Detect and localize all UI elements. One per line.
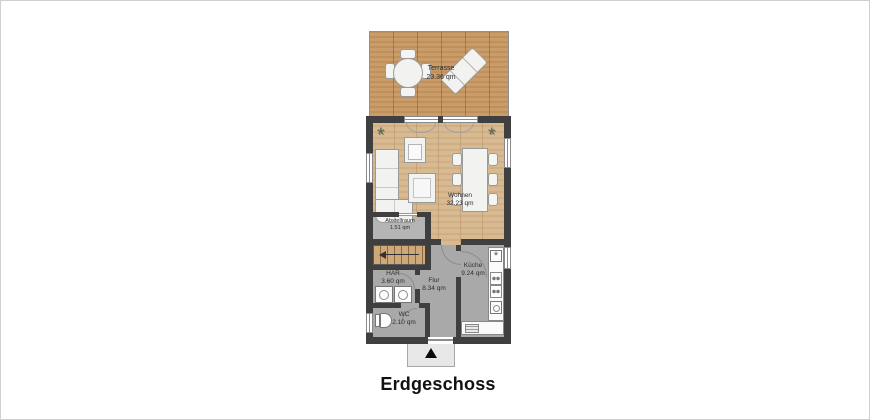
wohnen-label: Wohnen 32.23 qm — [434, 192, 486, 209]
room-name: WC — [387, 311, 421, 319]
wall — [453, 337, 511, 344]
wall — [415, 270, 420, 275]
flur-label: Flur 8.34 qm — [412, 277, 456, 294]
abstellraum-door — [399, 213, 417, 216]
room-name: Abstellraum — [374, 218, 426, 225]
wall — [461, 239, 511, 245]
wall — [438, 116, 443, 123]
wc-label: WC 2.10 qm — [387, 311, 421, 328]
armchair-seat — [408, 144, 422, 160]
abstellraum-label: Abstellraum 1.51 qm — [374, 218, 426, 233]
wall — [366, 183, 373, 313]
wall — [504, 168, 511, 247]
dining-chair — [488, 193, 498, 206]
wall — [366, 303, 401, 308]
oven-icon — [490, 301, 502, 314]
room-area: 23.36 qm — [411, 73, 471, 82]
stair-direction-arrow-icon — [379, 251, 386, 259]
wall — [456, 245, 461, 251]
room-name: Flur — [412, 277, 456, 285]
coffee-table — [408, 173, 436, 203]
dryer-drum — [398, 290, 408, 300]
terrasse-label: Terrasse 23.36 qm — [411, 64, 471, 82]
wall — [425, 303, 430, 337]
dining-chair — [452, 173, 462, 186]
room-area: 9.24 qm — [456, 270, 490, 278]
plant-icon: * — [377, 131, 384, 141]
washer-drum — [379, 290, 389, 300]
coffee-table-top — [413, 178, 431, 198]
har-label: HAR 3.60 qm — [372, 270, 414, 287]
room-name: Wohnen — [434, 192, 486, 200]
sink-icon: * — [490, 250, 502, 262]
dining-chair — [452, 153, 462, 166]
cooktop-icon — [490, 272, 502, 285]
floorplan-canvas: Terrasse 23.36 qm * * Wohnen 32.23 qm Ab… — [0, 0, 870, 420]
stair-direction-line — [385, 254, 419, 255]
room-area: 8.34 qm — [412, 285, 456, 293]
window — [366, 153, 373, 183]
wall — [366, 337, 428, 344]
plant-icon: * — [488, 131, 495, 141]
entrance-door — [428, 339, 453, 341]
wall — [504, 116, 511, 138]
window — [366, 313, 373, 333]
wall — [366, 116, 373, 153]
oven-door — [493, 305, 500, 312]
wall — [504, 269, 511, 344]
entrance-arrow-icon — [425, 348, 437, 358]
wall — [456, 277, 461, 337]
armchair — [404, 137, 426, 163]
window — [504, 138, 511, 168]
room-name: Küche — [456, 262, 490, 270]
room-area: 32.23 qm — [434, 200, 486, 208]
room-area: 1.51 qm — [374, 225, 426, 232]
room-area: 3.60 qm — [372, 278, 414, 286]
washer-icon — [375, 286, 393, 303]
room-area: 2.10 qm — [387, 319, 421, 327]
wall — [366, 212, 399, 217]
room-name: HAR — [372, 270, 414, 278]
window — [504, 247, 511, 269]
cooktop-icon — [490, 285, 502, 298]
kueche-label: Küche 9.24 qm — [456, 262, 490, 279]
dining-chair — [488, 153, 498, 166]
room-name: Terrasse — [411, 64, 471, 73]
terrace-chair — [400, 87, 416, 97]
dining-chair — [488, 173, 498, 186]
page-title: Erdgeschoss — [338, 374, 538, 395]
dishwasher-icon — [465, 324, 479, 333]
